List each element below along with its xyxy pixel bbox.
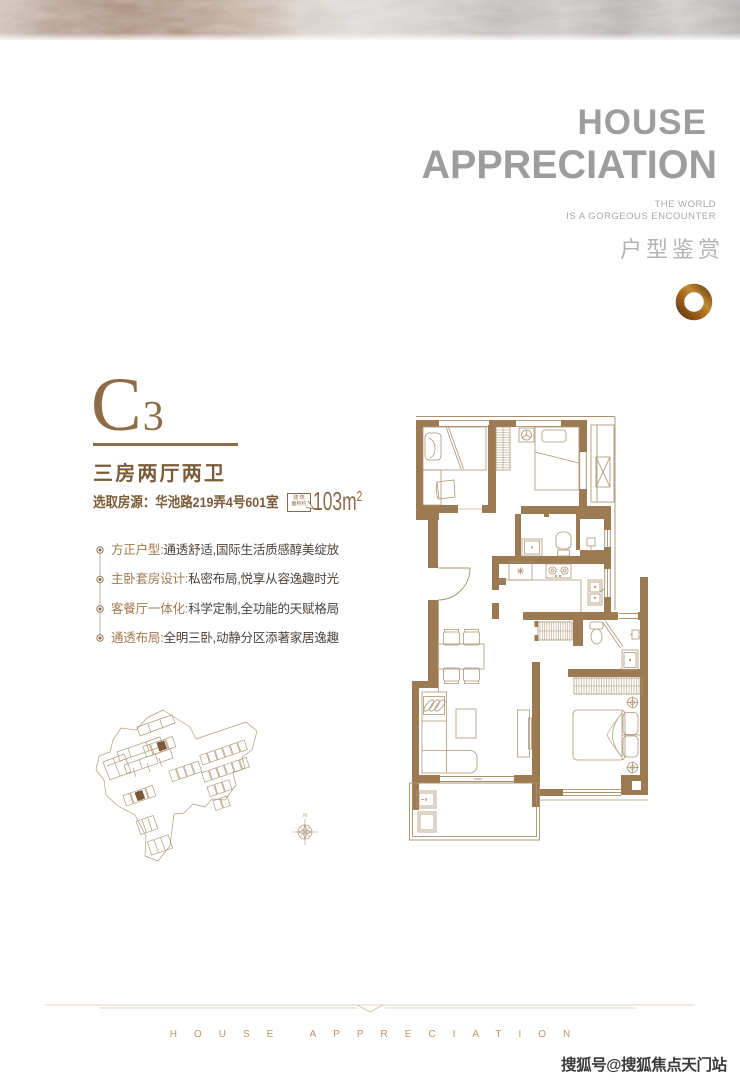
svg-text:N: N xyxy=(303,813,307,819)
